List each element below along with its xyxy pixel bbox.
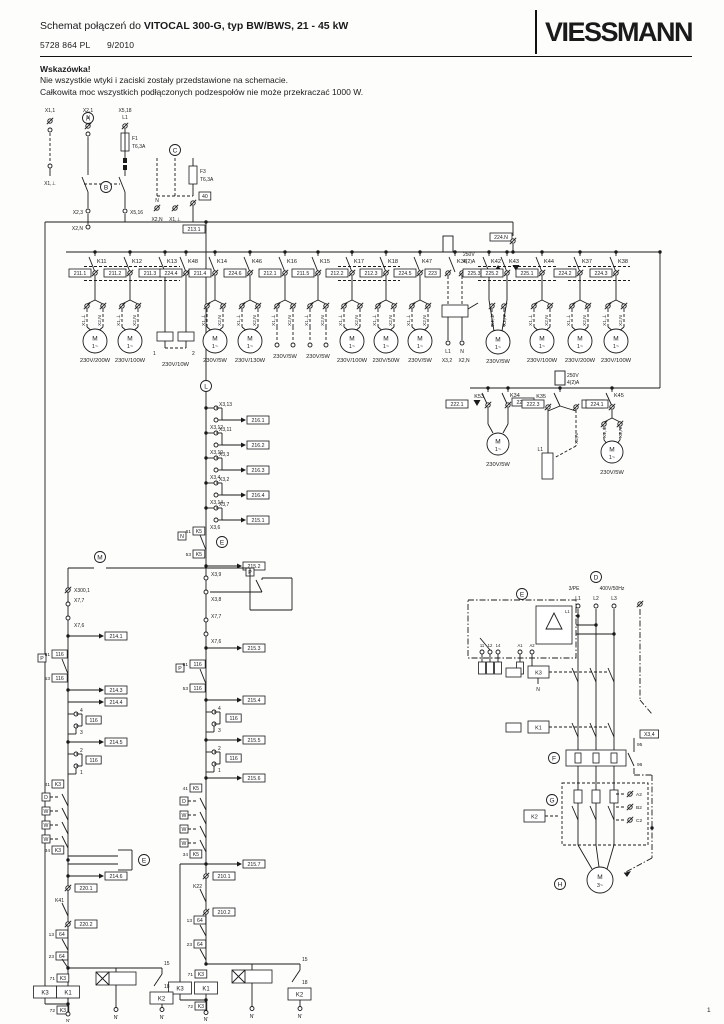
svg-text:X2,N: X2,N: [582, 315, 588, 326]
svg-text:116: 116: [229, 716, 237, 722]
svg-text:M: M: [212, 336, 217, 343]
svg-text:K48: K48: [188, 259, 198, 265]
svg-text:K5: K5: [193, 852, 199, 858]
svg-text:W: W: [44, 823, 49, 829]
svg-text:11: 11: [480, 643, 485, 648]
svg-text:71: 71: [50, 976, 56, 982]
branch-K38: K38224.3X1,⊥X2,NM1~230V/100W: [590, 250, 632, 364]
svg-text:212.1: 212.1: [264, 271, 277, 277]
mid-ladder: LX3,13X3,12216.1X3,11X3,10216.2X3,3X3,42…: [176, 381, 292, 983]
svg-text:K5: K5: [196, 552, 202, 558]
svg-text:214.6: 214.6: [110, 874, 123, 880]
svg-text:230V/200W: 230V/200W: [80, 358, 111, 364]
svg-text:A2: A2: [636, 792, 642, 798]
svg-text:N: N: [86, 115, 90, 121]
svg-text:X3,6: X3,6: [210, 525, 221, 531]
svg-text:18: 18: [302, 980, 308, 986]
branch-K11: K11211.1X1,⊥X2,NM1~230V/200W: [69, 250, 111, 364]
svg-text:3: 3: [218, 728, 221, 734]
svg-text:1: 1: [707, 1007, 711, 1014]
svg-text:X3,3: X3,3: [219, 452, 230, 458]
svg-text:X2,N: X2,N: [574, 433, 580, 444]
svg-text:N: N: [460, 349, 464, 355]
svg-text:X3,9: X3,9: [211, 572, 222, 578]
svg-text:224.2: 224.2: [559, 271, 572, 277]
svg-text:1~: 1~: [495, 345, 501, 351]
svg-text:X2,N: X2,N: [618, 427, 624, 438]
svg-text:W: W: [44, 809, 49, 815]
svg-text:72: 72: [50, 1008, 56, 1014]
svg-text:K37: K37: [582, 259, 592, 265]
supply-a-b: AX1,1X1,⊥X2,1NBX2,3X2,NX5,18L1F1T6,3AX5,…: [44, 108, 146, 232]
svg-text:230V/100W: 230V/100W: [601, 358, 632, 364]
svg-text:211.3: 211.3: [144, 271, 157, 277]
svg-text:225.2: 225.2: [486, 271, 499, 277]
svg-text:T6,3A: T6,3A: [132, 144, 146, 150]
svg-text:X1,⊥: X1,⊥: [116, 315, 122, 326]
svg-text:15: 15: [164, 961, 170, 967]
svg-text:K42: K42: [491, 259, 501, 265]
svg-text:X2,N: X2,N: [72, 226, 84, 232]
svg-text:4(2)A: 4(2)A: [463, 259, 476, 265]
svg-text:224.3: 224.3: [595, 271, 608, 277]
svg-text:K5: K5: [193, 786, 199, 792]
svg-text:K38: K38: [618, 259, 628, 265]
svg-text:23: 23: [187, 942, 193, 948]
branch-K12: K12211.2X1,⊥X2,NM1~230V/100W: [104, 250, 146, 364]
svg-text:13: 13: [187, 918, 193, 924]
svg-text:F: F: [552, 755, 556, 762]
svg-text:215.1: 215.1: [252, 518, 265, 524]
svg-text:1~: 1~: [92, 344, 98, 350]
svg-text:L1: L1: [445, 349, 451, 355]
branch-K16: K16212.1X1,⊥X2,N230V/5W: [259, 250, 297, 360]
svg-text:X7,7: X7,7: [74, 598, 85, 604]
svg-text:K2: K2: [158, 997, 166, 1003]
svg-text:X2,N: X2,N: [354, 315, 360, 326]
svg-text:23: 23: [49, 954, 55, 960]
svg-text:B2: B2: [636, 805, 642, 811]
svg-text:N: N: [536, 687, 540, 693]
svg-text:64: 64: [59, 932, 65, 938]
svg-text:211.4: 211.4: [194, 271, 207, 277]
svg-text:F1: F1: [132, 136, 138, 142]
svg-text:3~: 3~: [597, 883, 603, 889]
branch-K47: K47224.5X1,⊥X2,NM1~230V/5W: [394, 250, 432, 364]
svg-text:53: 53: [45, 676, 51, 682]
svg-text:1~: 1~: [495, 447, 501, 453]
svg-text:H: H: [558, 881, 563, 888]
svg-text:K46: K46: [252, 259, 262, 265]
svg-text:214.5: 214.5: [110, 740, 123, 746]
svg-text:X2,1: X2,1: [83, 108, 94, 114]
svg-text:N': N': [298, 1014, 303, 1020]
svg-text:X3,11: X3,11: [219, 427, 232, 433]
svg-text:K41: K41: [55, 898, 64, 904]
svg-text:X2,N: X2,N: [97, 315, 103, 326]
svg-text:K43: K43: [509, 259, 519, 265]
svg-text:211.5: 211.5: [297, 271, 310, 277]
svg-text:X1,⊥: X1,⊥: [528, 315, 534, 326]
svg-text:M: M: [577, 336, 582, 343]
svg-text:214.3: 214.3: [110, 688, 123, 694]
svg-text:F3: F3: [200, 169, 206, 175]
svg-text:X2,3: X2,3: [73, 210, 84, 216]
svg-text:X2,N: X2,N: [618, 315, 624, 326]
svg-text:230V/5W: 230V/5W: [486, 359, 510, 365]
svg-text:K13: K13: [167, 259, 177, 265]
svg-text:K1: K1: [535, 726, 542, 732]
svg-text:W: W: [182, 841, 187, 847]
svg-text:15: 15: [302, 957, 308, 963]
svg-text:K3: K3: [198, 1004, 204, 1010]
svg-text:K1: K1: [64, 991, 72, 997]
branch-K46: K46224.6X1,⊥X2,NM1~230V/130W: [224, 250, 266, 364]
svg-text:1~: 1~: [127, 344, 133, 350]
svg-text:K2: K2: [296, 993, 304, 999]
svg-text:W: W: [44, 837, 49, 843]
svg-text:X3,7: X3,7: [219, 502, 230, 508]
svg-text:L: L: [204, 383, 208, 390]
svg-text:225.3: 225.3: [468, 271, 481, 277]
svg-text:K3: K3: [55, 782, 61, 788]
svg-text:D: D: [182, 799, 186, 805]
svg-text:M: M: [597, 874, 602, 881]
svg-text:A1: A1: [517, 643, 523, 648]
svg-text:N': N': [66, 1018, 70, 1023]
svg-text:116: 116: [229, 756, 237, 762]
svg-text:216.1: 216.1: [252, 418, 265, 424]
svg-text:12: 12: [488, 643, 493, 648]
svg-text:M: M: [127, 336, 132, 343]
svg-text:95: 95: [637, 742, 643, 748]
svg-text:222.3: 222.3: [527, 402, 540, 408]
svg-text:64: 64: [197, 942, 203, 948]
svg-text:215.7: 215.7: [248, 862, 261, 868]
svg-text:230V/5W: 230V/5W: [306, 354, 330, 360]
svg-text:230V/5W: 230V/5W: [408, 358, 432, 364]
svg-text:L3: L3: [611, 596, 617, 602]
svg-text:X1,⊥: X1,⊥: [338, 315, 344, 326]
svg-text:X2,N: X2,N: [217, 315, 223, 326]
svg-text:X2,N: X2,N: [252, 315, 258, 326]
svg-text:116: 116: [193, 686, 201, 692]
svg-text:13: 13: [49, 932, 55, 938]
svg-text:N': N': [250, 1014, 255, 1020]
svg-text:230V/130W: 230V/130W: [235, 358, 266, 364]
svg-text:14: 14: [496, 643, 501, 648]
svg-text:116: 116: [55, 676, 63, 682]
branch-K44: K44225.1X1,⊥X2,NM1~230V/100W: [516, 250, 558, 364]
svg-text:72: 72: [188, 1004, 194, 1010]
left-bottom-unit: 1518K2N'N'71K3K1K372K3N': [34, 961, 174, 1023]
schematic-page: Schemat połączeń do VITOCAL 300-G, typ B…: [0, 0, 724, 1024]
svg-text:1~: 1~: [349, 344, 355, 350]
svg-text:D: D: [44, 795, 48, 801]
svg-text:2: 2: [192, 351, 195, 357]
svg-text:X2,N: X2,N: [422, 315, 428, 326]
svg-text:K45: K45: [614, 393, 624, 399]
svg-text:K22: K22: [193, 884, 202, 890]
svg-text:K12: K12: [132, 259, 142, 265]
svg-text:E: E: [520, 591, 525, 598]
svg-text:K18: K18: [388, 259, 398, 265]
svg-text:1: 1: [80, 770, 83, 776]
svg-text:X1,⊥: X1,⊥: [602, 315, 608, 326]
svg-text:M: M: [495, 337, 500, 344]
svg-text:X2,N: X2,N: [502, 315, 508, 326]
svg-text:W: W: [182, 813, 187, 819]
svg-text:L1: L1: [565, 609, 570, 614]
svg-text:E: E: [142, 857, 147, 864]
svg-text:X1,⊥: X1,⊥: [44, 181, 56, 187]
svg-text:220.1: 220.1: [80, 886, 93, 892]
svg-text:224.5: 224.5: [399, 271, 412, 277]
svg-text:X1,⊥: X1,⊥: [372, 315, 378, 326]
svg-text:X1,1: X1,1: [45, 108, 56, 114]
svg-text:N: N: [155, 198, 159, 204]
svg-text:4: 4: [80, 708, 83, 714]
svg-text:230V/50W: 230V/50W: [372, 358, 400, 364]
svg-text:53: 53: [183, 686, 189, 692]
svg-text:G: G: [549, 797, 554, 804]
svg-text:X1,⊥: X1,⊥: [81, 315, 87, 326]
branch-K18: K18212.3X1,⊥X2,NM1~230V/50W: [360, 250, 400, 364]
svg-text:X3,13: X3,13: [219, 402, 232, 408]
branch-K37: K37224.2X1,⊥X2,NM1~230V/200W: [554, 250, 596, 364]
svg-text:1: 1: [218, 768, 221, 774]
svg-text:216.4: 216.4: [252, 493, 265, 499]
svg-text:K3: K3: [535, 671, 542, 677]
svg-text:211.1: 211.1: [74, 271, 87, 277]
svg-text:214.1: 214.1: [110, 634, 123, 640]
svg-text:M: M: [417, 336, 422, 343]
svg-text:K2: K2: [531, 815, 538, 821]
svg-text:1~: 1~: [383, 344, 389, 350]
svg-text:E: E: [220, 539, 225, 546]
svg-text:210.2: 210.2: [218, 910, 231, 916]
wiring-diagram: AX1,1X1,⊥X2,1NBX2,3X2,NX5,18L1F1T6,3AX5,…: [0, 0, 724, 1024]
svg-text:X2,N: X2,N: [320, 315, 326, 326]
svg-text:211.2: 211.2: [109, 271, 122, 277]
svg-text:224.N: 224.N: [494, 235, 508, 241]
svg-text:P: P: [178, 666, 182, 672]
svg-text:K3: K3: [55, 848, 61, 854]
svg-text:N': N': [160, 1015, 165, 1021]
svg-text:18: 18: [164, 984, 170, 990]
svg-text:X3,2: X3,2: [219, 477, 230, 483]
svg-text:K14: K14: [217, 259, 227, 265]
svg-text:220.2: 220.2: [80, 922, 93, 928]
svg-text:X2,N: X2,N: [458, 358, 470, 364]
svg-text:116: 116: [89, 758, 97, 764]
svg-text:34: 34: [45, 848, 51, 854]
svg-text:M: M: [247, 336, 252, 343]
svg-text:K11: K11: [97, 259, 107, 265]
svg-text:N': N': [204, 1017, 209, 1023]
svg-text:X3,2: X3,2: [442, 358, 453, 364]
svg-text:K3: K3: [198, 972, 204, 978]
svg-text:M: M: [92, 336, 97, 343]
svg-text:1~: 1~: [539, 344, 545, 350]
svg-text:X3,4: X3,4: [644, 732, 655, 738]
svg-text:K35: K35: [536, 394, 546, 400]
svg-text:214.4: 214.4: [110, 700, 123, 706]
svg-text:X1,⊥: X1,⊥: [304, 315, 310, 326]
svg-text:X2,N: X2,N: [287, 315, 293, 326]
branch-K15: K15211.5X1,⊥X2,N230V/5W: [292, 250, 330, 360]
svg-text:4(2)A: 4(2)A: [567, 380, 580, 386]
svg-text:X1,⊥: X1,⊥: [201, 315, 207, 326]
svg-text:X1,⊥: X1,⊥: [602, 427, 608, 438]
svg-text:B: B: [104, 184, 108, 191]
svg-text:1~: 1~: [417, 344, 423, 350]
svg-text:2: 2: [218, 746, 221, 752]
svg-text:34: 34: [183, 852, 189, 858]
svg-text:230V/5W: 230V/5W: [600, 470, 624, 476]
svg-text:224.1: 224.1: [591, 402, 604, 408]
svg-text:250V: 250V: [567, 373, 579, 379]
svg-text:K3: K3: [41, 991, 49, 997]
svg-text:M: M: [349, 336, 354, 343]
svg-text:K5: K5: [196, 529, 202, 535]
svg-text:1~: 1~: [247, 344, 253, 350]
svg-text:41: 41: [183, 786, 189, 792]
relay-row-2: K53222.1K34222.2M1~230V/5WK35250V4(2)A22…: [446, 371, 660, 479]
svg-text:X300,1: X300,1: [74, 588, 90, 594]
svg-text:224.6: 224.6: [229, 271, 242, 277]
svg-text:N: N: [180, 534, 184, 540]
svg-text:230V/5W: 230V/5W: [486, 462, 510, 468]
svg-text:M: M: [495, 439, 500, 446]
svg-text:K16: K16: [287, 259, 297, 265]
svg-text:K15: K15: [320, 259, 330, 265]
svg-text:96: 96: [637, 762, 643, 768]
svg-text:L1: L1: [537, 447, 543, 453]
supply-c: CF3T6,3A40NX2,NX1,⊥: [151, 145, 214, 224]
svg-text:61: 61: [45, 652, 51, 658]
svg-text:L2: L2: [593, 596, 599, 602]
svg-text:1~: 1~: [609, 455, 615, 461]
svg-text:230V/100W: 230V/100W: [527, 358, 558, 364]
svg-text:L1: L1: [122, 115, 128, 121]
svg-text:215.3: 215.3: [248, 646, 261, 652]
svg-text:X5,18: X5,18: [118, 108, 131, 114]
svg-text:P: P: [40, 656, 44, 662]
svg-text:61: 61: [183, 662, 189, 668]
svg-text:K3: K3: [60, 1008, 66, 1014]
svg-text:X2,N: X2,N: [388, 315, 394, 326]
svg-text:X1,⊥: X1,⊥: [566, 315, 572, 326]
svg-text:230V/5W: 230V/5W: [273, 354, 297, 360]
svg-text:W: W: [182, 827, 187, 833]
svg-text:222.1: 222.1: [451, 402, 464, 408]
svg-text:40: 40: [202, 194, 208, 200]
svg-text:1~: 1~: [212, 344, 218, 350]
svg-text:X1,⊥: X1,⊥: [236, 315, 242, 326]
svg-text:1~: 1~: [577, 344, 583, 350]
svg-text:41: 41: [45, 782, 51, 788]
svg-text:K44: K44: [544, 259, 554, 265]
svg-text:A2: A2: [529, 643, 535, 648]
svg-text:212.3: 212.3: [365, 271, 378, 277]
svg-text:213.1: 213.1: [188, 227, 201, 233]
branch-K14: K14211.4X1,⊥X2,NM1~230V/5W: [189, 250, 227, 364]
svg-text:X5,16: X5,16: [130, 210, 143, 216]
svg-text:K53: K53: [474, 394, 484, 400]
svg-text:230V/100W: 230V/100W: [115, 358, 146, 364]
svg-text:K1: K1: [202, 987, 210, 993]
svg-text:K47: K47: [422, 259, 432, 265]
svg-text:X3,8: X3,8: [211, 597, 222, 603]
svg-text:K3: K3: [176, 987, 184, 993]
svg-text:225.1: 225.1: [521, 271, 534, 277]
power-section: D3/PE400V/50HzL1L2L3EL1111214A1A2NK3NK1F…: [468, 572, 659, 894]
svg-text:3: 3: [80, 730, 83, 736]
svg-text:X1,⊥: X1,⊥: [406, 315, 412, 326]
svg-text:210.1: 210.1: [218, 874, 231, 880]
svg-text:X7,6: X7,6: [74, 623, 85, 629]
svg-text:M: M: [613, 336, 618, 343]
svg-text:116: 116: [89, 718, 97, 724]
svg-text:X2,N: X2,N: [132, 315, 138, 326]
svg-text:2: 2: [80, 748, 83, 754]
svg-text:X2,N: X2,N: [544, 315, 550, 326]
svg-text:4: 4: [218, 706, 221, 712]
svg-text:224.4: 224.4: [165, 271, 178, 277]
svg-text:230V/10W: 230V/10W: [162, 362, 190, 368]
svg-text:116: 116: [193, 662, 201, 668]
svg-text:116: 116: [55, 652, 63, 658]
svg-text:K17: K17: [354, 259, 364, 265]
branch-K17: K17212.2X1,⊥X2,NM1~230V/100W: [326, 250, 368, 364]
svg-text:216.3: 216.3: [252, 468, 265, 474]
svg-text:3/PE: 3/PE: [569, 586, 581, 592]
mid-bottom-unit: 1518K2N'N'71K3K1K372K3N': [169, 957, 312, 1023]
svg-text:230V/5W: 230V/5W: [203, 358, 227, 364]
svg-text:N': N': [114, 1015, 119, 1021]
svg-text:215.4: 215.4: [248, 698, 261, 704]
page-number: 1: [707, 1007, 711, 1014]
svg-text:71: 71: [188, 972, 194, 978]
svg-text:250V: 250V: [463, 252, 475, 258]
branch-K36: K36250V4(2)A223L1NX3,2X2,N: [425, 236, 478, 364]
svg-text:61: 61: [186, 529, 192, 535]
svg-text:M: M: [383, 336, 388, 343]
svg-text:223: 223: [428, 271, 437, 277]
svg-text:230V/100W: 230V/100W: [337, 358, 368, 364]
svg-text:M: M: [539, 336, 544, 343]
svg-text:230V/200W: 230V/200W: [565, 358, 596, 364]
svg-text:53: 53: [186, 552, 192, 558]
svg-text:X7,7: X7,7: [211, 614, 222, 620]
svg-text:64: 64: [197, 918, 203, 924]
svg-text:M: M: [609, 447, 614, 454]
svg-text:X7,6: X7,6: [211, 639, 222, 645]
svg-text:C: C: [173, 147, 178, 154]
svg-text:400V/50Hz: 400V/50Hz: [600, 586, 625, 592]
svg-text:212.2: 212.2: [331, 271, 344, 277]
svg-text:M: M: [97, 554, 102, 561]
svg-text:T6,3A: T6,3A: [200, 177, 214, 183]
svg-text:X1,⊥: X1,⊥: [490, 315, 496, 326]
svg-text:215.6: 215.6: [248, 776, 261, 782]
svg-text:1: 1: [153, 351, 156, 357]
branch-K48: K48224.42230V/10W: [160, 250, 198, 368]
svg-text:1~: 1~: [613, 344, 619, 350]
svg-text:D: D: [594, 574, 599, 581]
svg-text:C2: C2: [636, 818, 642, 824]
